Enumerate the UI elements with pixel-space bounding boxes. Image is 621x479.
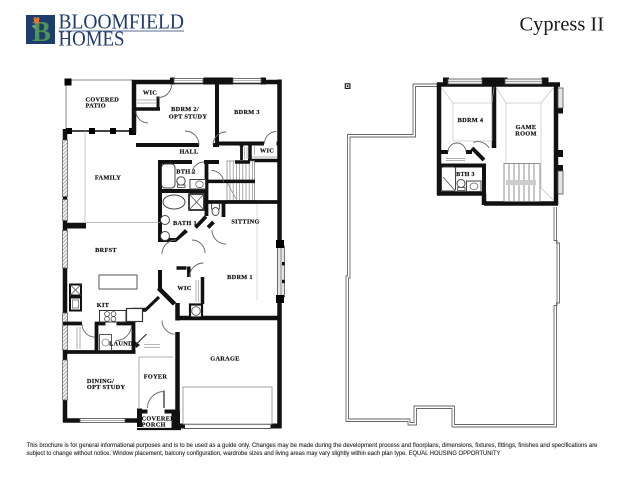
svg-text:PATIO: PATIO xyxy=(86,102,107,109)
svg-text:OPT STUDY: OPT STUDY xyxy=(169,114,208,121)
svg-text:BATH 1: BATH 1 xyxy=(173,220,197,227)
svg-text:subject to change without noti: subject to change without notice. Window… xyxy=(27,450,501,457)
svg-text:This brochure is for general i: This brochure is for general information… xyxy=(27,442,599,449)
svg-text:BDRM 1: BDRM 1 xyxy=(227,274,253,281)
svg-text:ROOM: ROOM xyxy=(515,131,537,138)
svg-text:BRFST: BRFST xyxy=(95,247,117,254)
svg-text:OPT STUDY: OPT STUDY xyxy=(87,384,126,391)
svg-text:GARAGE: GARAGE xyxy=(210,356,239,363)
svg-text:WIC: WIC xyxy=(143,90,157,97)
svg-text:KIT: KIT xyxy=(97,302,110,309)
svg-text:FOYER: FOYER xyxy=(144,374,168,381)
svg-text:BDRM 3: BDRM 3 xyxy=(234,109,260,116)
svg-text:BTH 3: BTH 3 xyxy=(456,172,475,178)
svg-text:PORCH: PORCH xyxy=(142,422,166,429)
svg-text:HOMES: HOMES xyxy=(59,27,125,51)
svg-text:SITTING: SITTING xyxy=(231,219,259,226)
svg-text:LAUND: LAUND xyxy=(109,341,133,348)
svg-text:WIC: WIC xyxy=(260,148,274,155)
svg-text:HALL: HALL xyxy=(179,149,198,156)
svg-text:BTH 2: BTH 2 xyxy=(176,169,196,176)
svg-text:BDRM 2/: BDRM 2/ xyxy=(171,106,199,113)
svg-text:FAMILY: FAMILY xyxy=(95,175,121,182)
svg-text:WIC: WIC xyxy=(177,285,191,292)
svg-text:BDRM 4: BDRM 4 xyxy=(458,117,484,124)
svg-text:Cypress II: Cypress II xyxy=(520,14,605,36)
